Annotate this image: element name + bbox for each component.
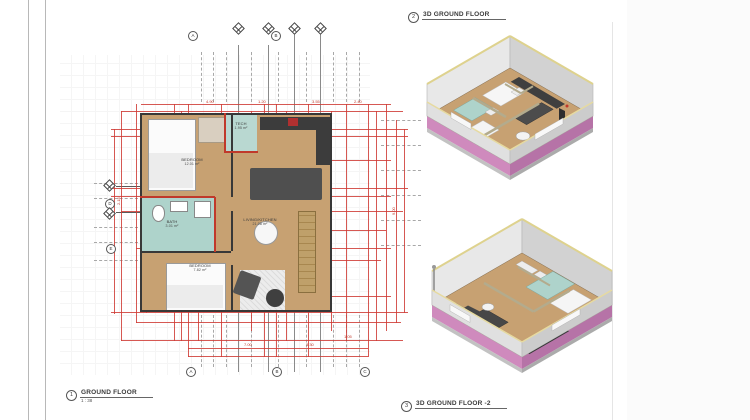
room-area: 7.82 m² <box>176 268 224 272</box>
dim-text: 7.00 <box>244 342 252 347</box>
sheet-right-margin <box>627 0 750 420</box>
survey-marker-icon <box>314 22 327 35</box>
view-callout-plan: 1 GROUND FLOOR 1 : 38 <box>66 389 153 403</box>
antenna-head <box>432 265 436 269</box>
view-scale: 1 : 38 <box>80 398 153 403</box>
drawing-sheet: { "callouts": { "plan": {"num": "1", "ti… <box>0 0 750 420</box>
iso-view-1[interactable] <box>415 24 600 192</box>
room-label-tech: TECH 1.95 m² <box>217 121 265 130</box>
dim-text: 9.00 <box>391 207 396 215</box>
room-label-living: LIVING/KITCHEN 21.08 m² <box>236 217 284 226</box>
view-title: 3D GROUND FLOOR -2 <box>415 400 507 409</box>
grid-bubble: B <box>272 367 282 377</box>
grid-bubble: A <box>188 31 198 41</box>
view-title: GROUND FLOOR <box>80 389 153 398</box>
exterior-walls <box>140 113 332 312</box>
dim-text: 3.30 <box>306 342 314 347</box>
tech-wall <box>224 151 258 153</box>
room-area: 21.08 m² <box>236 222 284 226</box>
room-area: 1.95 m² <box>217 126 265 130</box>
dim-text: 4.90 <box>206 99 214 104</box>
bath-wall <box>140 196 215 198</box>
grid-bubble: C <box>360 367 370 377</box>
interior-wall <box>140 251 231 253</box>
bath-wall <box>214 197 216 252</box>
room-label-bedroom2: BEDROOM 7.82 m² <box>176 263 224 272</box>
interior-wall <box>231 211 233 251</box>
tech-wall <box>224 113 226 152</box>
alarm-dot <box>566 105 569 108</box>
dim-text: 2.15 <box>116 197 121 205</box>
view-callout-iso2: 3 3D GROUND FLOOR -2 <box>401 400 507 412</box>
grid-bubble: A <box>186 367 196 377</box>
room-area: 3.01 m² <box>148 224 196 228</box>
view-number-badge: 3 <box>401 401 412 412</box>
sheet-border-line-outer <box>28 0 29 420</box>
view-callout-iso1: 2 3D GROUND FLOOR <box>408 11 506 23</box>
view-number-badge: 1 <box>66 390 77 401</box>
grid-bubble: E <box>106 244 116 254</box>
view-title: 3D GROUND FLOOR <box>422 11 506 20</box>
survey-marker-icon <box>288 22 301 35</box>
dim-text: 2.40 <box>354 99 362 104</box>
dim-text: 1.05 <box>344 334 352 339</box>
floor-plan: BEDROOM 12.01 m² TECH 1.95 m² BATH 3.01 … <box>140 113 332 312</box>
grid-bubble: B <box>271 31 281 41</box>
dim-text: 1.20 <box>258 99 266 104</box>
interior-wall <box>231 265 233 312</box>
round-table <box>482 303 494 310</box>
room-label-bath: BATH 3.01 m² <box>148 219 196 228</box>
survey-marker-icon <box>232 22 245 35</box>
dim-text: 3.55 <box>312 99 320 104</box>
room-label-bedroom1: BEDROOM 12.01 m² <box>168 157 216 166</box>
iso-view-2[interactable] <box>422 207 622 387</box>
view-number-badge: 2 <box>408 12 419 23</box>
room-area: 12.01 m² <box>168 162 216 166</box>
